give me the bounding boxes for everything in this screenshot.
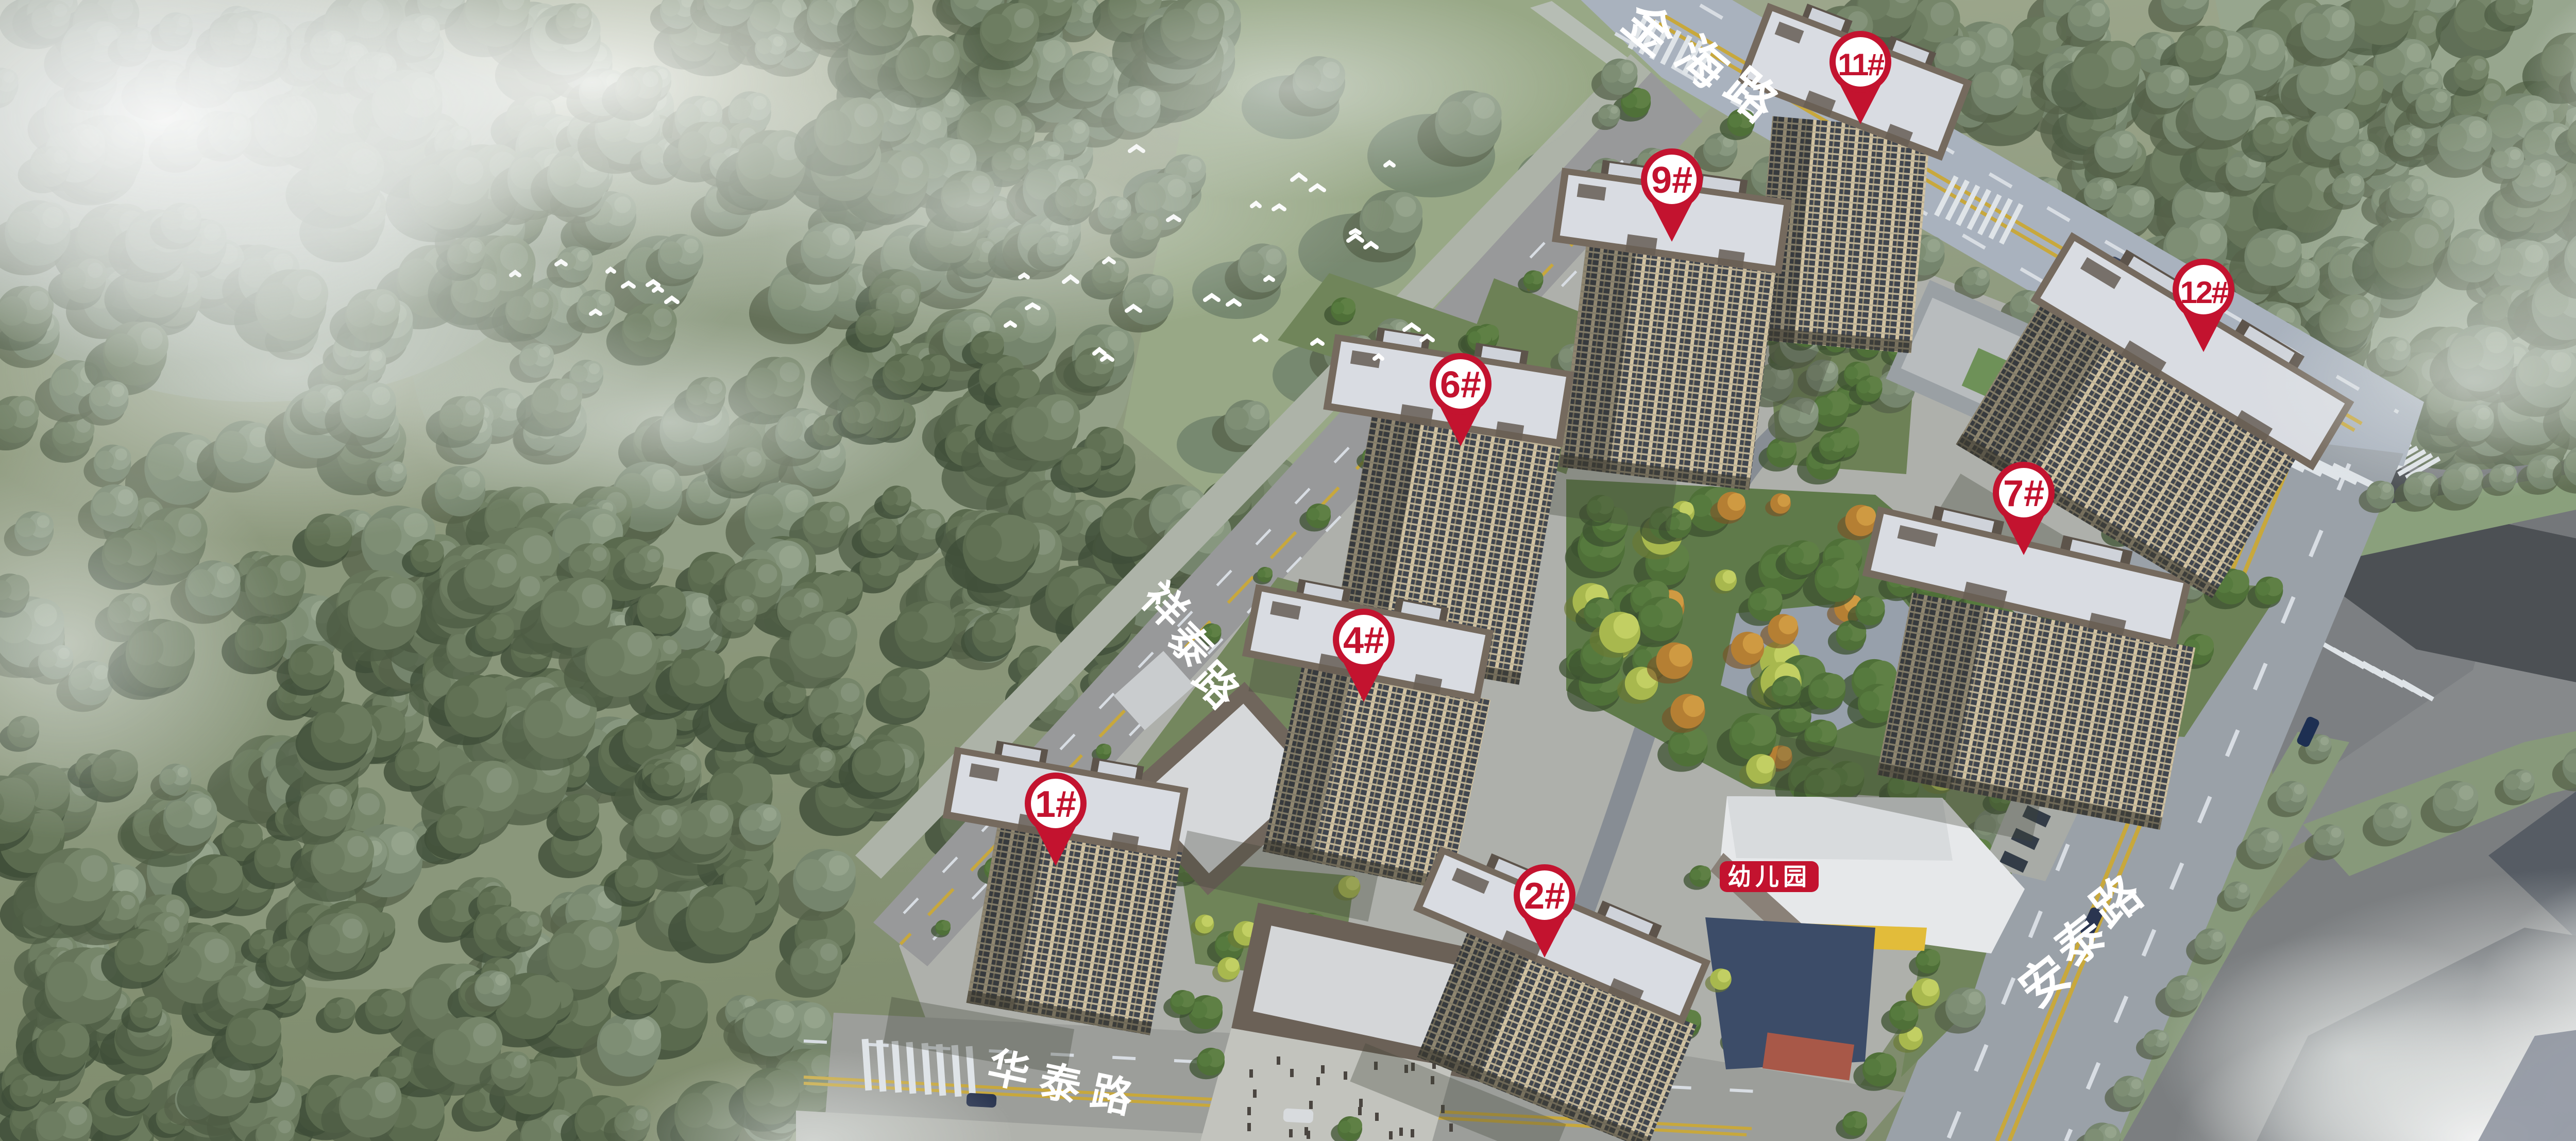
svg-text:11#: 11# — [1838, 47, 1884, 82]
svg-text:2#: 2# — [1524, 876, 1565, 917]
svg-text:7#: 7# — [2003, 473, 2044, 514]
svg-text:1#: 1# — [1035, 784, 1076, 825]
svg-text:幼儿园: 幼儿园 — [1727, 863, 1811, 890]
svg-text:4#: 4# — [1343, 620, 1384, 661]
svg-text:9#: 9# — [1651, 160, 1692, 201]
svg-text:6#: 6# — [1440, 364, 1481, 406]
svg-text:12#: 12# — [2180, 275, 2228, 310]
